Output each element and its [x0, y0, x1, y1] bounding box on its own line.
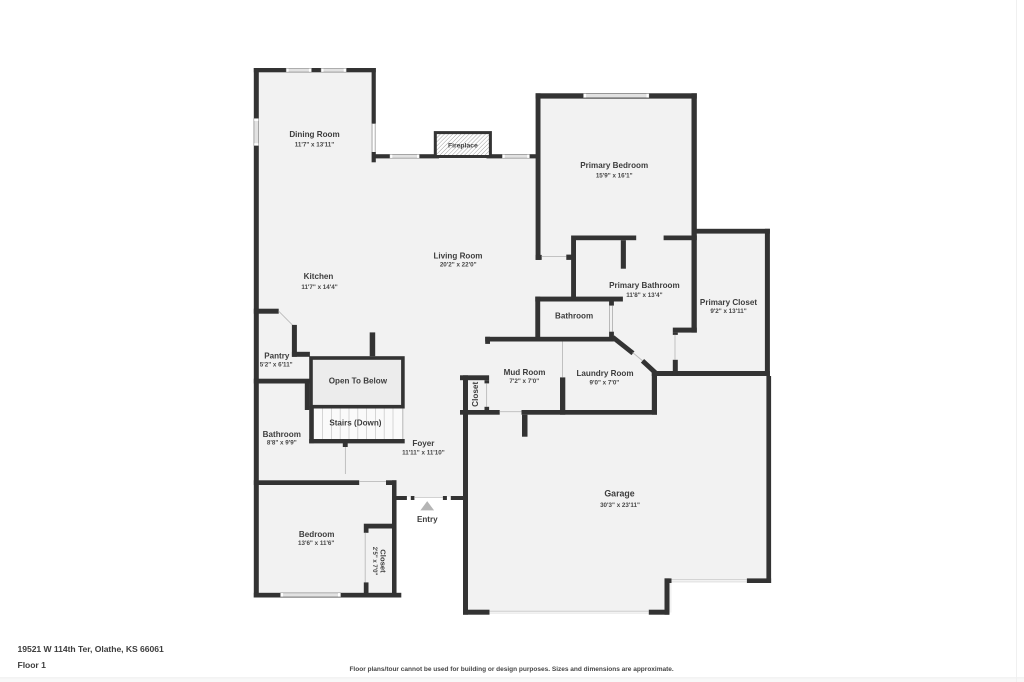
svg-text:11'7" x 14'4": 11'7" x 14'4" [301, 284, 337, 291]
svg-text:Bathroom: Bathroom [555, 311, 593, 320]
svg-text:Primary Bathroom: Primary Bathroom [609, 281, 680, 290]
svg-text:Open To Below: Open To Below [329, 377, 388, 386]
svg-text:Primary Closet: Primary Closet [700, 298, 757, 307]
svg-text:Mud Room: Mud Room [504, 368, 546, 377]
svg-text:Fireplace: Fireplace [448, 142, 478, 149]
svg-text:15'9" x 16'1": 15'9" x 16'1" [596, 173, 633, 180]
svg-text:5'2" x 6'11": 5'2" x 6'11" [260, 361, 293, 368]
svg-text:Floor 1: Floor 1 [18, 660, 47, 670]
svg-text:19521 W 114th Ter, Olathe, KS: 19521 W 114th Ter, Olathe, KS 66061 [18, 644, 164, 654]
svg-text:Garage: Garage [604, 489, 634, 499]
svg-text:Foyer: Foyer [412, 439, 435, 448]
svg-text:Kitchen: Kitchen [304, 272, 334, 281]
svg-text:Laundry Room: Laundry Room [576, 369, 633, 378]
svg-text:9'2" x 13'11": 9'2" x 13'11" [710, 308, 746, 315]
svg-text:Closet: Closet [378, 549, 387, 573]
svg-text:Bedroom: Bedroom [299, 530, 335, 539]
svg-text:Closet: Closet [471, 382, 480, 407]
svg-text:Stairs (Down): Stairs (Down) [329, 419, 381, 428]
svg-text:11'7" x 13'11": 11'7" x 13'11" [295, 142, 335, 149]
svg-text:30'3" x 23'11": 30'3" x 23'11" [600, 502, 640, 509]
svg-text:20'2" x 22'0": 20'2" x 22'0" [440, 262, 477, 269]
svg-text:Bathroom: Bathroom [263, 430, 301, 439]
svg-text:Pantry: Pantry [264, 352, 290, 361]
svg-text:13'6" x 11'6": 13'6" x 11'6" [298, 540, 334, 547]
svg-text:Entry: Entry [417, 515, 438, 524]
svg-text:Living Room: Living Room [433, 252, 482, 261]
svg-text:2'5" x 7'0": 2'5" x 7'0" [371, 547, 377, 576]
svg-text:Floor plans/tour cannot be use: Floor plans/tour cannot be used for buil… [349, 666, 673, 673]
svg-text:11'11" x 11'10": 11'11" x 11'10" [402, 450, 445, 457]
svg-text:Dining Room: Dining Room [289, 130, 339, 139]
svg-text:8'8" x 9'9": 8'8" x 9'9" [267, 440, 297, 447]
svg-text:Primary Bedroom: Primary Bedroom [580, 161, 648, 170]
svg-text:9'0" x 7'0": 9'0" x 7'0" [590, 379, 620, 386]
svg-text:7'2" x 7'0": 7'2" x 7'0" [509, 378, 539, 385]
svg-text:11'8" x 13'4": 11'8" x 13'4" [626, 292, 662, 299]
